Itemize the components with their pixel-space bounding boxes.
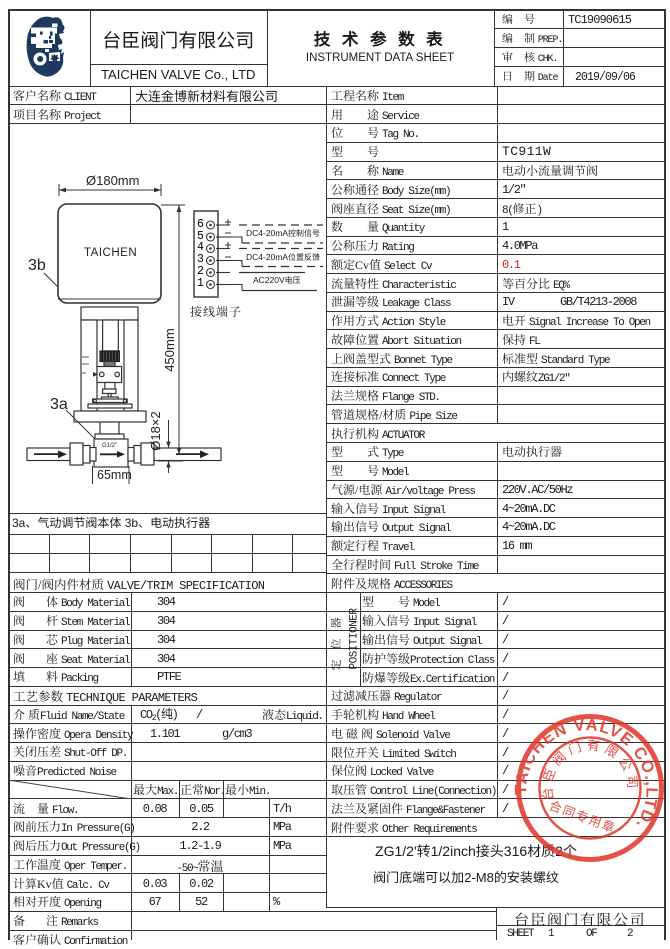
svg-text:450mm: 450mm <box>162 328 177 371</box>
svg-text:3b: 3b <box>28 257 46 274</box>
svg-text:Ø180mm: Ø180mm <box>86 173 139 188</box>
svg-text:65mm: 65mm <box>97 468 132 482</box>
svg-text:3a: 3a <box>50 396 68 413</box>
svg-text:Ø18×2: Ø18×2 <box>148 411 163 450</box>
svg-text:TAICHEN: TAICHEN <box>84 247 137 259</box>
svg-text:POSITIONER: POSITIONER <box>349 608 361 670</box>
svg-text:定位器: 定位器 <box>328 608 344 671</box>
svg-text:G1/2": G1/2" <box>102 443 117 449</box>
svg-text:合同专用章: 合同专用章 <box>547 795 619 837</box>
